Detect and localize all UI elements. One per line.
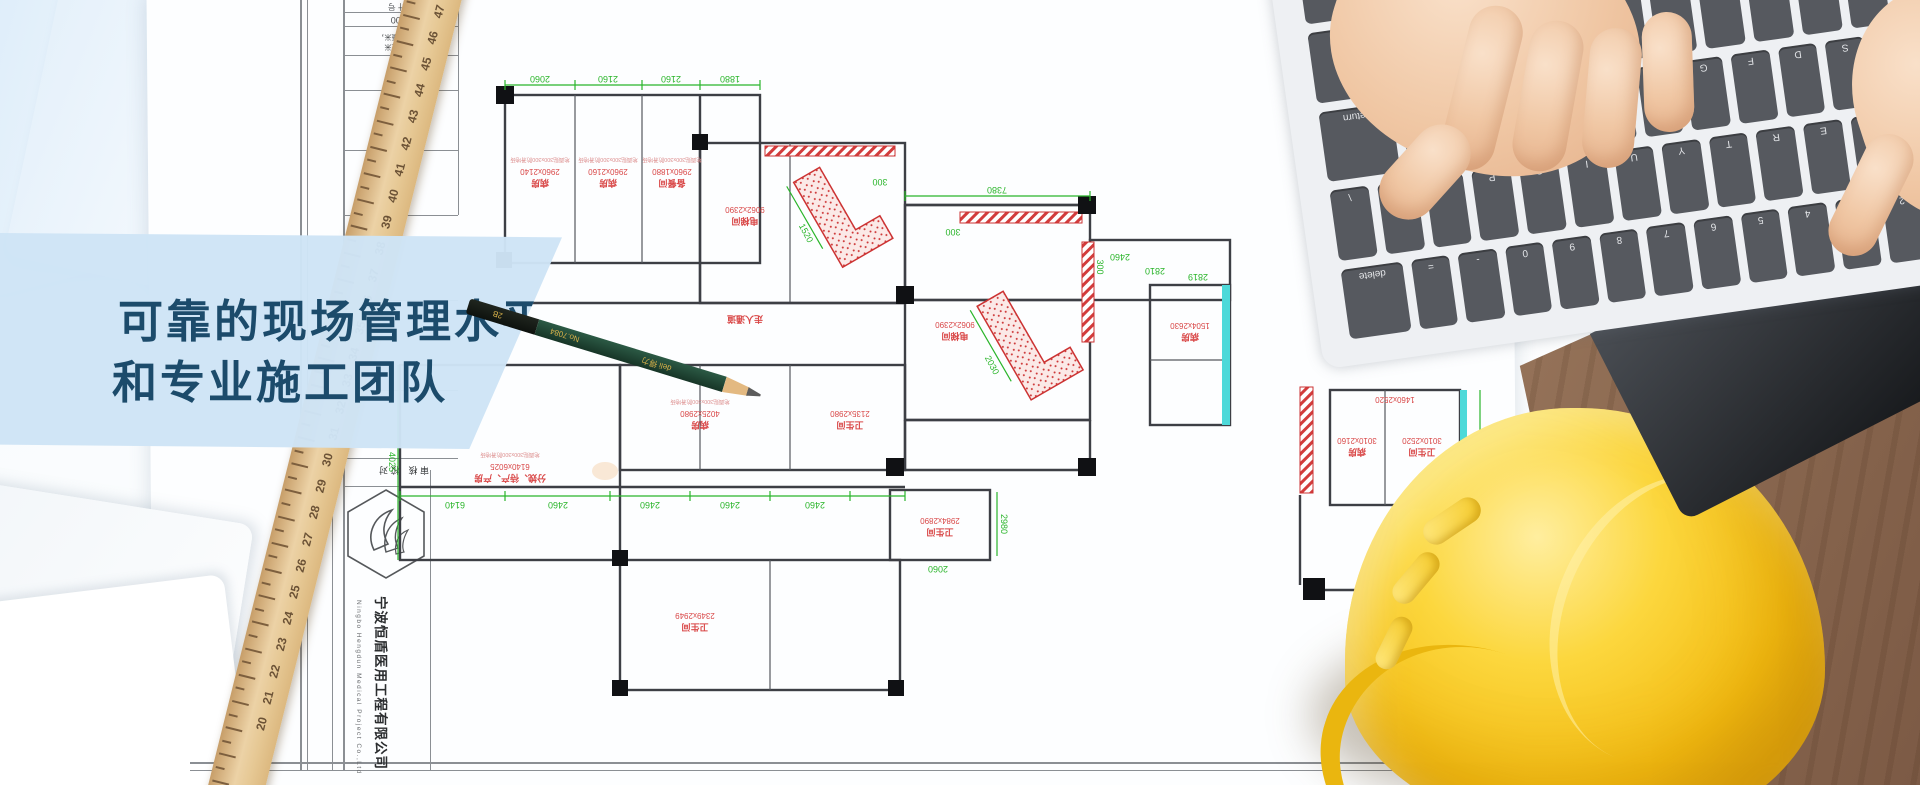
- dim-top-3: 2160: [661, 74, 681, 84]
- room-label: 备餐间 2960x1880 地面贴300x300防滑地砖: [642, 156, 702, 189]
- svg-text:病房: 病房: [691, 420, 709, 431]
- hero-banner: 设 计 号 1:100 尺寸单位毫米， 标高单位米 图纸编号 图 名 审 核 校…: [0, 0, 1920, 785]
- room-label: 病房 2960x2140 地面贴300x300防滑地砖: [510, 156, 570, 189]
- dim-300-c: 300: [872, 177, 887, 187]
- fingernail: [592, 462, 618, 480]
- keyboard-key: F: [1730, 49, 1778, 124]
- svg-text:病房: 病房: [531, 178, 549, 189]
- dim-4025: 4025: [387, 452, 397, 472]
- keyboard-key: 6: [1693, 215, 1741, 290]
- room-label: 电梯间 9062x2390: [725, 205, 765, 227]
- svg-text:2960x2160: 2960x2160: [588, 167, 628, 176]
- typing-finger-4: [1641, 11, 1695, 133]
- keyboard-key: X: [1793, 0, 1842, 35]
- dim-right-1: 2460: [1110, 252, 1130, 262]
- room-label: 卫生间 2135x2980: [830, 409, 870, 431]
- dim-300-a: 300: [945, 227, 960, 237]
- keyboard-key: T: [1708, 132, 1756, 207]
- svg-text:2960x1880: 2960x1880: [652, 167, 692, 176]
- room-label: 卫生间 2984x2890: [920, 516, 960, 538]
- svg-text:电梯间: 电梯间: [941, 331, 968, 342]
- keyboard-key: 0: [1505, 241, 1553, 316]
- svg-text:卫生间: 卫生间: [926, 527, 953, 538]
- room-label: 病房 2960x2160 地面贴300x300防滑地砖: [578, 156, 638, 189]
- dim-2060: 2060: [928, 564, 948, 574]
- room-label: 病房 4025x2980 地面贴300x300防滑地砖: [670, 398, 730, 431]
- dim-bottom-5: 2460: [805, 500, 825, 510]
- svg-text:3010x2160: 3010x2160: [1337, 436, 1377, 445]
- svg-text:9062x2390: 9062x2390: [935, 320, 975, 329]
- dim-300-b: 300: [1095, 259, 1105, 274]
- keyboard-key: 4: [1787, 202, 1835, 277]
- svg-text:病房: 病房: [1348, 447, 1366, 458]
- keyboard-key: P: [1472, 166, 1520, 241]
- keyboard-key: \: [1329, 186, 1377, 261]
- keyboard-key: E: [1803, 119, 1851, 194]
- dim-top-1: 2060: [530, 74, 550, 84]
- keyboard-key: 9: [1552, 235, 1600, 310]
- shaft-shape-2: [970, 276, 1083, 404]
- headline-line-2: 和专业施工团队: [112, 346, 448, 411]
- keyboard-key: delete: [1340, 261, 1411, 339]
- svg-text:卫生间: 卫生间: [1408, 447, 1435, 458]
- room-label: 病房 1504x2630: [1170, 321, 1210, 343]
- room-label: 卫生间 2349x2949: [675, 611, 715, 633]
- svg-text:备餐间: 备餐间: [658, 178, 686, 189]
- svg-text:病房: 病房: [1181, 332, 1199, 343]
- keyboard-key: 8: [1599, 228, 1647, 303]
- dim-bottom-1: 6140: [445, 500, 465, 510]
- room-label: 卫生间 3010x2520: [1402, 436, 1442, 458]
- svg-text:2349x2949: 2349x2949: [675, 611, 715, 620]
- svg-text:3010x2520: 3010x2520: [1402, 436, 1442, 445]
- svg-text:2960x2140: 2960x2140: [520, 167, 560, 176]
- keyboard-key: C: [1745, 0, 1794, 42]
- dim-bottom-4: 2460: [720, 500, 740, 510]
- dim-1520: 1520: [797, 222, 815, 244]
- svg-text:病房: 病房: [599, 178, 617, 189]
- svg-text:卫生间: 卫生间: [836, 420, 863, 431]
- svg-text:4025x2980: 4025x2980: [680, 409, 720, 418]
- dim-7380: 7380: [987, 185, 1007, 195]
- dim-2030: 2030: [983, 354, 1001, 376]
- dim-top-2: 2160: [598, 74, 618, 84]
- dim-2980: 2980: [999, 514, 1009, 534]
- svg-text:电梯间: 电梯间: [731, 216, 758, 227]
- svg-text:地面贴300x300防滑地砖: 地面贴300x300防滑地砖: [670, 398, 730, 406]
- room-label: 1460x2520: [1375, 395, 1415, 404]
- svg-text:地面贴300x300防滑地砖: 地面贴300x300防滑地砖: [642, 156, 702, 164]
- dim-bottom-2: 2460: [548, 500, 568, 510]
- svg-text:地面贴300x300防滑地砖: 地面贴300x300防滑地砖: [578, 156, 638, 164]
- hero-text-overlay: 可靠的现场管理水平 和专业施工团队: [0, 233, 562, 449]
- keyboard-key: R: [1756, 126, 1804, 201]
- svg-text:1504x2630: 1504x2630: [1170, 321, 1210, 330]
- svg-text:1460x2520: 1460x2520: [1375, 395, 1415, 404]
- keyboard-key: 7: [1646, 221, 1694, 296]
- svg-text:地面贴300x300防滑地砖: 地面贴300x300防滑地砖: [480, 451, 540, 459]
- pencil-grade-text: 2B: [492, 309, 504, 320]
- room-label: 分娩、待产、产房 6140x6025 地面贴300x300防滑地砖: [474, 451, 546, 484]
- svg-text:地面贴300x300防滑地砖: 地面贴300x300防滑地砖: [510, 156, 570, 164]
- keyboard-key: 5: [1740, 208, 1788, 283]
- svg-text:9062x2390: 9062x2390: [725, 205, 765, 214]
- shaft-shape-1: [787, 153, 893, 271]
- svg-text:2984x2890: 2984x2890: [920, 516, 960, 525]
- keyboard-key: V: [1697, 0, 1746, 49]
- keyboard-key: =: [1411, 255, 1459, 330]
- corridor-label: 走人通道: [727, 314, 764, 325]
- room-label: 电梯间 9062x2390: [935, 320, 975, 342]
- svg-text:6140x6025: 6140x6025: [490, 462, 530, 471]
- dim-right-3: 2819: [1188, 272, 1208, 282]
- svg-text:卫生间: 卫生间: [681, 622, 708, 633]
- room-label: 病房 3010x2160: [1337, 436, 1377, 458]
- svg-text:分娩、待产、产房: 分娩、待产、产房: [474, 473, 546, 484]
- svg-text:2135x2980: 2135x2980: [830, 409, 870, 418]
- keyboard-key: D: [1777, 43, 1825, 118]
- dim-bottom-3: 2460: [640, 500, 660, 510]
- dim-top-4: 1880: [720, 74, 740, 84]
- keyboard-key: -: [1458, 248, 1506, 323]
- dim-right-2: 2810: [1145, 266, 1165, 276]
- keyboard-key: Y: [1661, 139, 1709, 214]
- svg-text:走人通道: 走人通道: [727, 314, 764, 325]
